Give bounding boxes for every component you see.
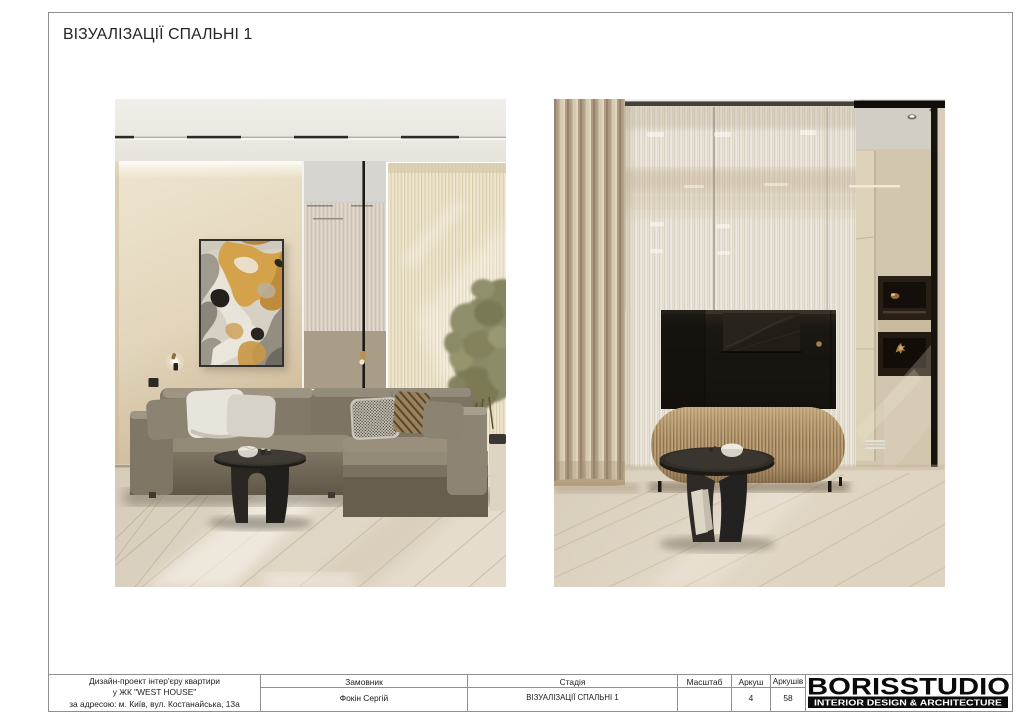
svg-text:INTERIOR DESIGN & ARCHITECTURE: INTERIOR DESIGN & ARCHITECTURE xyxy=(814,699,1003,708)
